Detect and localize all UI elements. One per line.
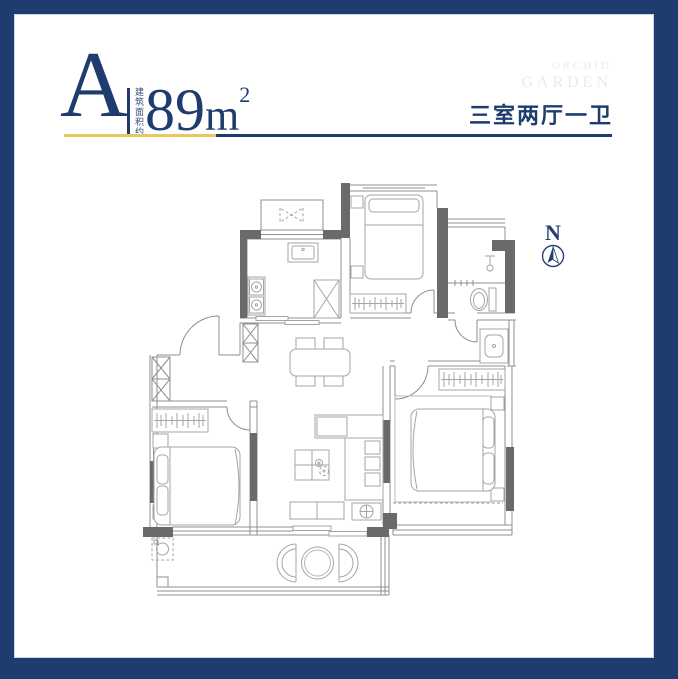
compass-needle-dark: [548, 247, 554, 264]
nightstand: [351, 196, 363, 208]
balcony-chair: [339, 544, 358, 582]
sw-bedroom-door: [227, 407, 250, 430]
balcony-slider-panel: [293, 526, 331, 531]
watermark-line2: GARDEN: [521, 73, 612, 92]
area-value: 89m2: [145, 80, 250, 141]
unit-label: A: [60, 38, 128, 132]
shaft-columns: [152, 324, 258, 401]
vanity: [480, 329, 508, 363]
layout-description: 三室两厅一卫: [469, 98, 613, 130]
master-bedroom: [395, 369, 505, 502]
master-bedroom-door: [395, 366, 428, 399]
balcony: [152, 538, 358, 582]
north-bedroom-door: [411, 290, 434, 313]
north-bedroom-bed: [365, 195, 423, 279]
poster-frame: A 建筑面积约 89m2 ORCHID GARDEN 三室两厅一卫: [0, 0, 678, 679]
master-bay-window: [393, 525, 512, 535]
master-bed: [411, 409, 495, 491]
kitchen-slider-panel: [256, 317, 288, 321]
kitchen-window: [261, 230, 323, 239]
kitchen-slider-panel: [285, 321, 319, 325]
stove: [248, 277, 265, 315]
watermark-line1: ORCHID: [521, 60, 612, 73]
nightstand: [351, 266, 363, 278]
north-bedroom: [350, 195, 423, 313]
nightstand: [491, 397, 504, 410]
entry-door: [180, 316, 219, 355]
header-divider-bar: [127, 88, 130, 134]
nightstand: [153, 434, 168, 448]
balcony-corner-box: [157, 577, 168, 587]
divider-navy: [216, 134, 612, 137]
area-unit: m: [205, 91, 239, 140]
dining-area: [290, 338, 350, 386]
nightstand: [491, 488, 504, 501]
divider-gold: [64, 134, 216, 137]
shower-head: [487, 265, 493, 271]
sw-bedroom: [152, 409, 240, 525]
balcony-windows: [157, 535, 389, 595]
bathroom-door: [455, 320, 477, 342]
living-room: [290, 415, 383, 520]
watermark: ORCHID GARDEN: [521, 60, 612, 92]
compass-needle-light: [553, 247, 559, 264]
poster-content: A 建筑面积约 89m2 ORCHID GARDEN 三室两厅一卫: [14, 14, 654, 658]
balcony-table: [302, 547, 334, 579]
compass: N: [543, 220, 564, 267]
flue-bowtie-symbol: [280, 208, 303, 222]
balcony-slider-panel: [329, 532, 367, 537]
dining-table: [290, 349, 350, 376]
compass-north-label: N: [545, 220, 561, 245]
washing-machine: [152, 538, 173, 560]
floorplan-svg: N: [143, 183, 583, 601]
bathroom: [471, 256, 509, 363]
area-exponent: 2: [239, 82, 250, 107]
kitchen: [248, 243, 339, 318]
balcony-chair: [277, 544, 296, 582]
